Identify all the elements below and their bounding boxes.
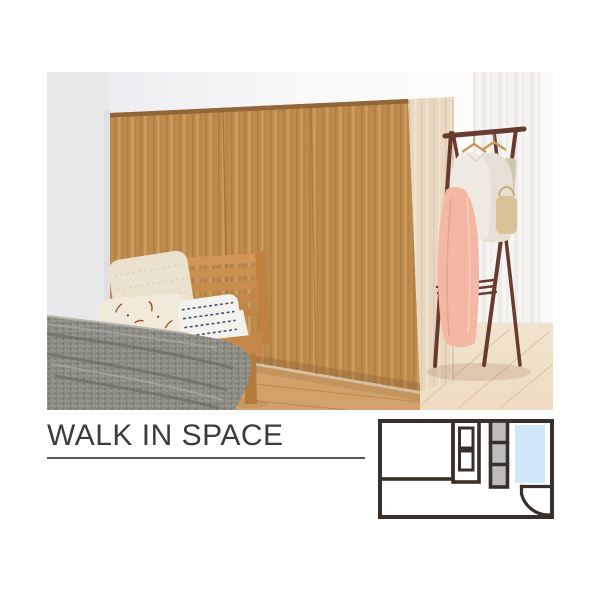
plan-cabinet-column	[491, 421, 508, 487]
caption-rule	[47, 457, 365, 459]
caption-title: WALK IN SPACE	[47, 419, 387, 454]
plan-walkin-highlight	[515, 425, 545, 483]
pink-dress	[438, 187, 479, 347]
floor-plan-diagram	[378, 419, 554, 520]
floor-plan-svg	[378, 419, 554, 520]
tan-bag	[496, 196, 517, 234]
bedroom-photo	[47, 72, 553, 410]
rack-floor-shadow	[427, 363, 531, 381]
bedroom-photo-svg	[47, 72, 553, 410]
